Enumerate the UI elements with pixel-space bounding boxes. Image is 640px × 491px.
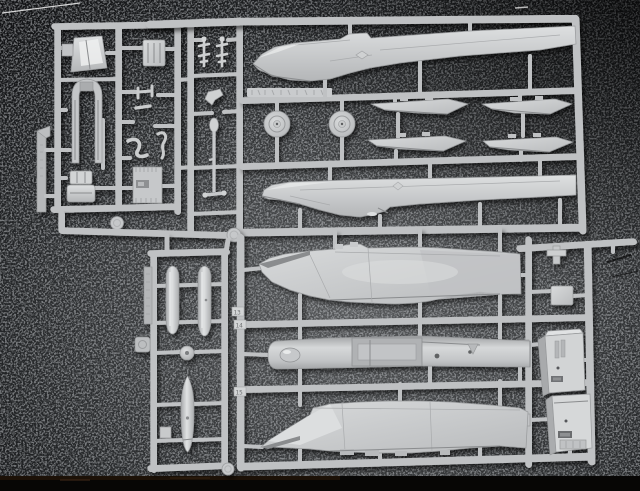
part-intake-duct-box	[538, 329, 585, 396]
part-louvered-panel	[133, 167, 162, 203]
part-intake-duct-box	[546, 394, 592, 455]
part-main-wheel	[329, 111, 355, 137]
part-instrument-panel	[143, 40, 165, 66]
part-centerline-store	[181, 376, 194, 452]
part-intake-trunk	[268, 336, 530, 369]
embossed-runner-marking	[247, 88, 332, 97]
part-square-panel	[551, 286, 573, 305]
part-small-panel	[160, 427, 171, 438]
part-ejection-seat	[67, 171, 95, 202]
part-drop-tank	[198, 266, 211, 336]
gate-tag-15: 15	[234, 387, 246, 397]
part-hub-ball	[180, 346, 194, 360]
gate-tag-14: 14	[234, 320, 246, 330]
model-kit-sprue-photo: 13 14 15	[0, 0, 640, 491]
runner-joint	[111, 217, 124, 230]
part-drop-tank	[166, 266, 179, 334]
photo-canvas: 13 14 15	[0, 0, 640, 491]
gate-tag-13: 13	[232, 307, 244, 317]
gate-tag-14-label: 14	[236, 323, 244, 330]
runner-joint	[222, 463, 234, 475]
gate-tag-13-label: 13	[234, 310, 242, 317]
scratch-mark	[515, 7, 528, 8]
part-main-wheel	[264, 111, 290, 137]
gate-tag-15-label: 15	[236, 390, 244, 397]
